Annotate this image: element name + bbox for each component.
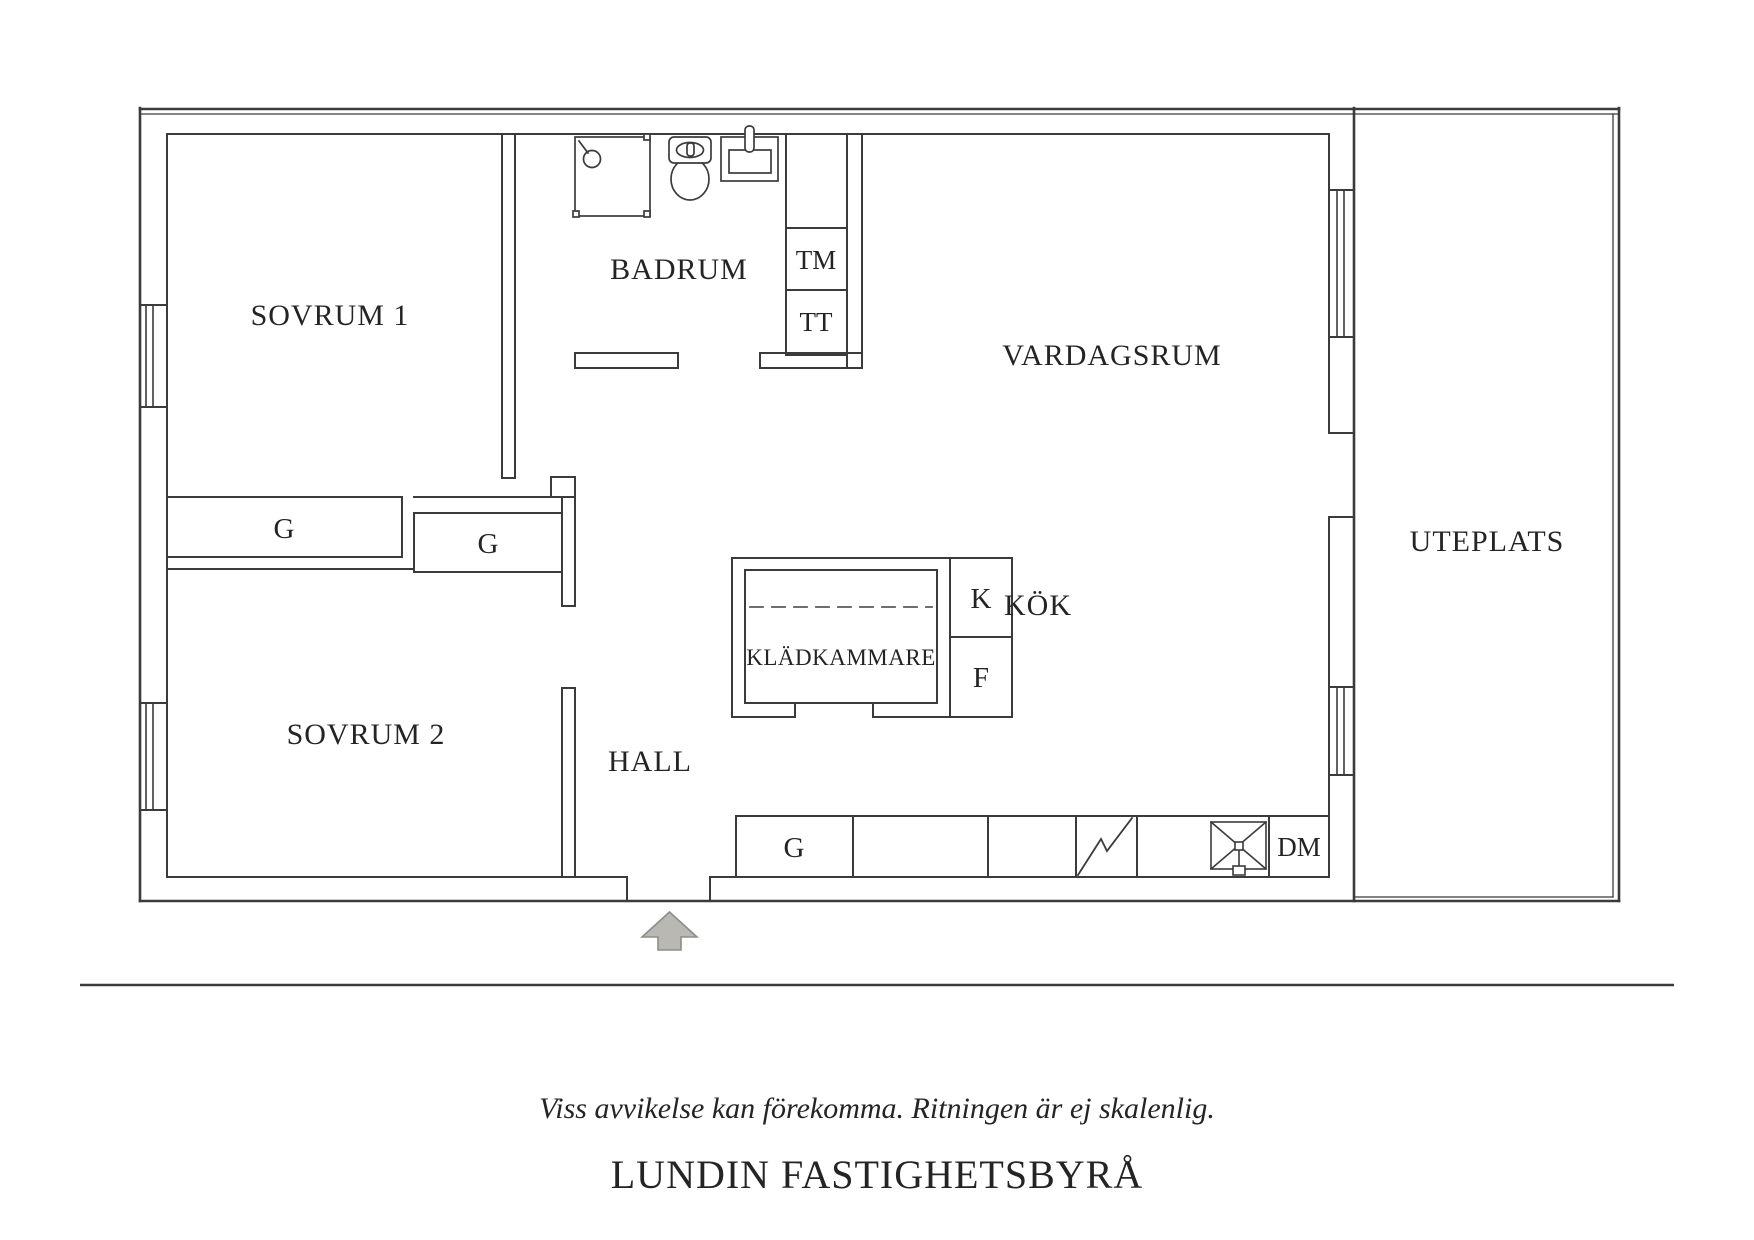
label-dm: DM: [1277, 832, 1321, 862]
inner-wall-faces: [140, 134, 1354, 901]
kladkammare-walls: [732, 558, 950, 717]
wall-sovrum2-right: [551, 477, 575, 877]
outer-wall-contours: [140, 114, 1619, 897]
wall-sovrum1-right: [502, 134, 515, 478]
floorplan-page: SOVRUM 1 BADRUM VARDAGSRUM UTEPLATS SOVR…: [0, 0, 1754, 1240]
wall-badrum-right: [847, 134, 862, 368]
label-sovrum2: SOVRUM 2: [287, 718, 446, 751]
label-k: K: [971, 583, 992, 615]
entrance-arrow-shape: [642, 912, 697, 950]
label-tt: TT: [800, 307, 833, 337]
footer-brand: LUNDIN FASTIGHETSBYRÅ: [611, 1152, 1143, 1197]
label-wardrobe-g1: G: [274, 513, 295, 545]
sink-icon: [1211, 822, 1266, 875]
walls: [140, 108, 1619, 901]
label-vardagsrum: VARDAGSRUM: [1002, 339, 1222, 372]
label-hall: HALL: [608, 745, 692, 778]
label-f: F: [973, 662, 989, 694]
outer-walls: [140, 108, 1619, 901]
window-vardagsrum: [1337, 190, 1344, 337]
label-badrum: BADRUM: [610, 253, 748, 286]
window-sovrum1: [146, 305, 153, 407]
entrance-arrow: [642, 912, 697, 950]
footer: Viss avvikelse kan förekomma. Ritningen …: [80, 985, 1674, 1197]
wardrobe-row: [167, 497, 562, 572]
label-wardrobe-g3: G: [784, 832, 805, 864]
label-sovrum1: SOVRUM 1: [251, 299, 410, 332]
toilet-icon: [669, 137, 711, 200]
label-tm: TM: [796, 245, 837, 275]
window-sovrum2: [146, 703, 153, 810]
footer-disclaimer: Viss avvikelse kan förekomma. Ritningen …: [539, 1092, 1215, 1125]
labels: SOVRUM 1 BADRUM VARDAGSRUM UTEPLATS SOVR…: [251, 245, 1565, 864]
label-wardrobe-g2: G: [478, 528, 499, 560]
label-uteplats: UTEPLATS: [1410, 525, 1565, 558]
shower-icon: [573, 134, 650, 217]
window-kok: [1337, 687, 1344, 775]
floorplan-canvas: SOVRUM 1 BADRUM VARDAGSRUM UTEPLATS SOVR…: [0, 0, 1754, 1240]
label-kok: KÖK: [1004, 589, 1072, 622]
stove-icon: [1078, 818, 1132, 875]
label-kladkammare: KLÄDKAMMARE: [746, 645, 936, 670]
